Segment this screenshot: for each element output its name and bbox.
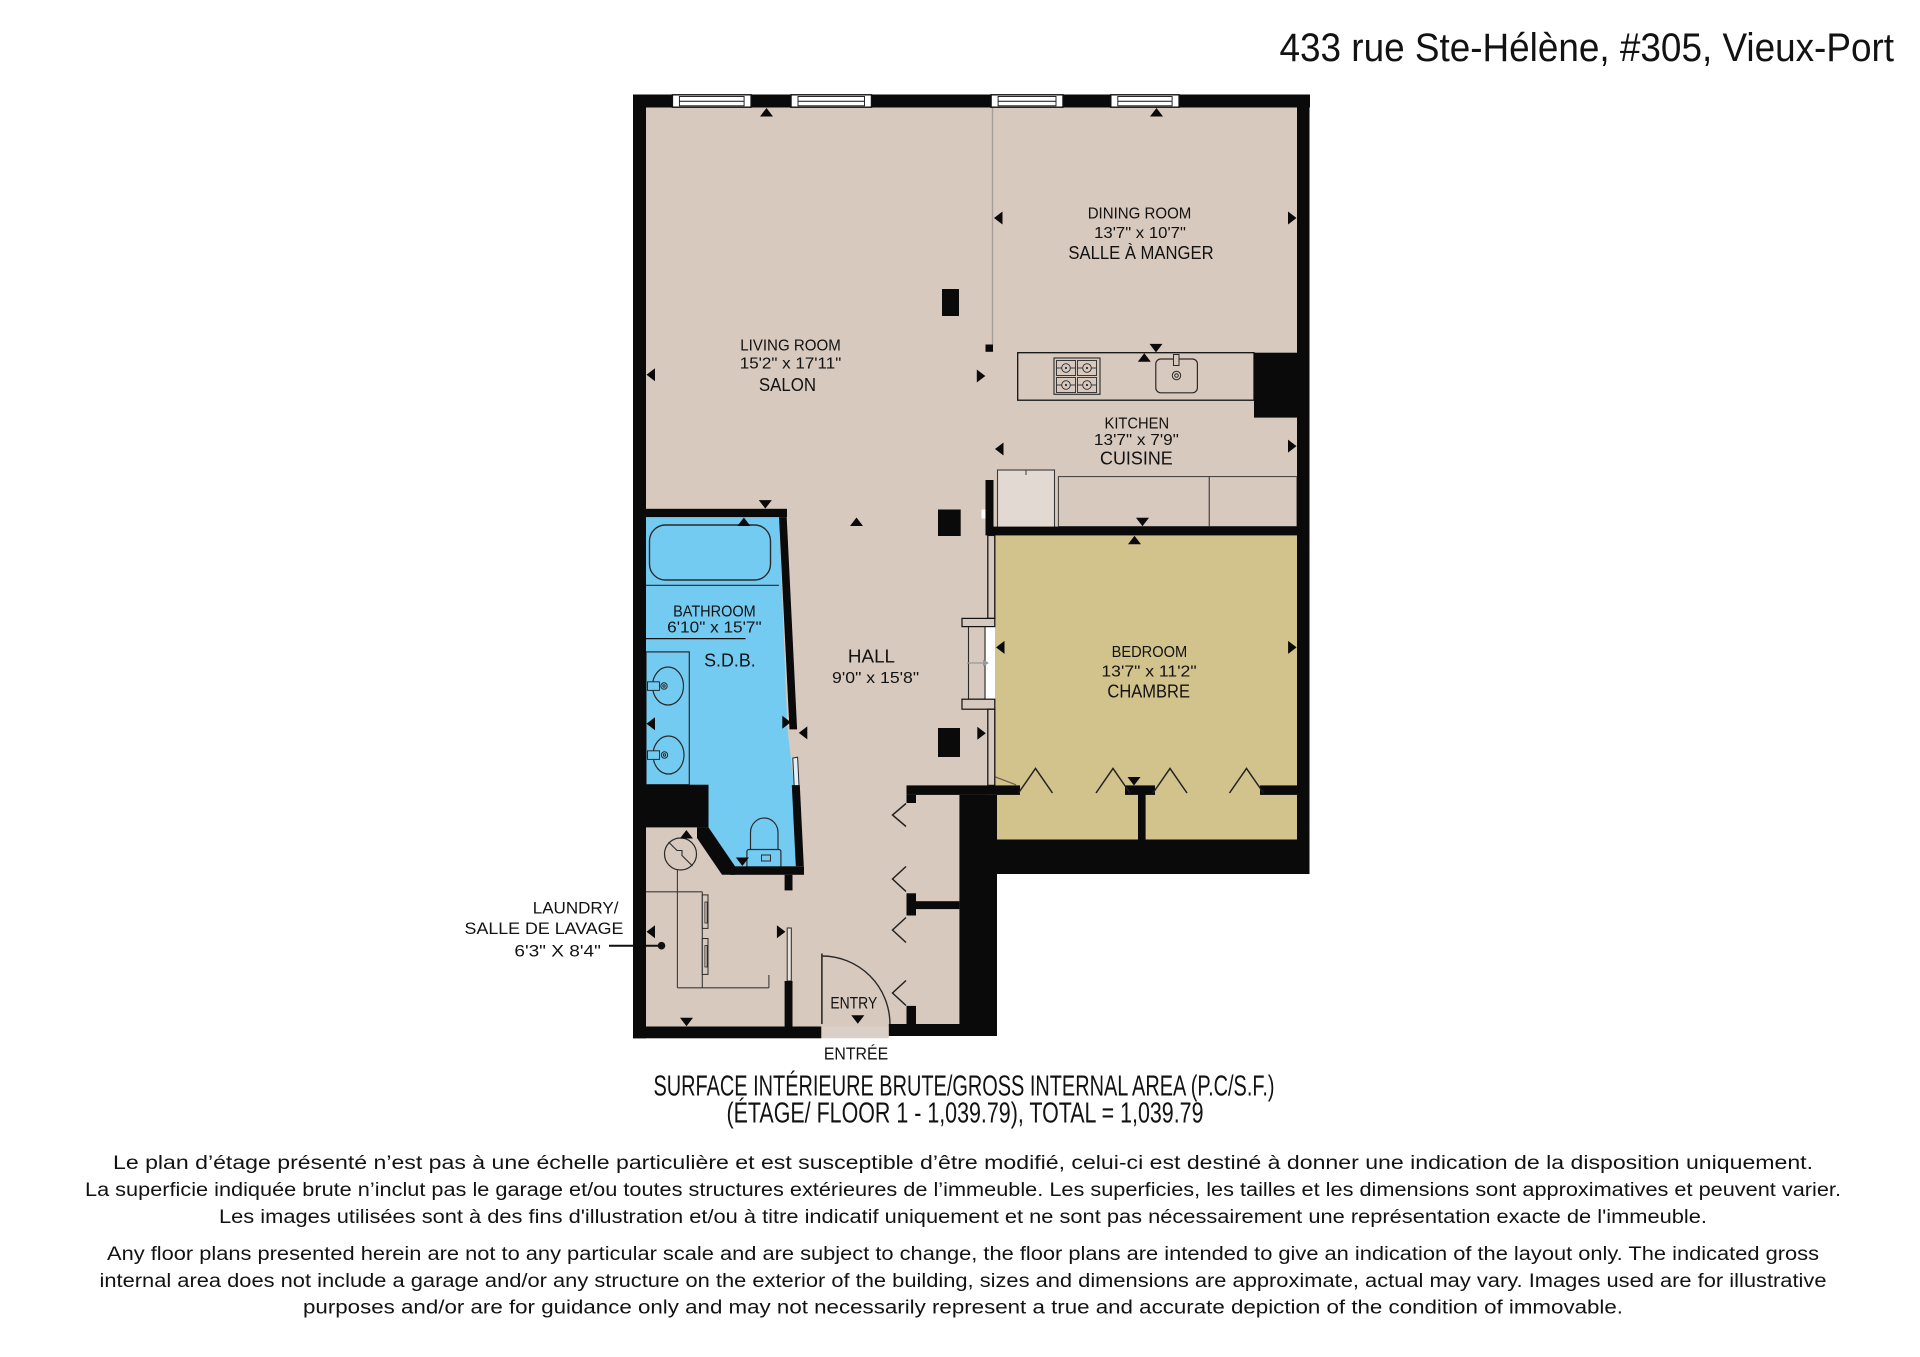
svg-text:13'7" x 10'7": 13'7" x 10'7" <box>1094 225 1186 242</box>
svg-text:BEDROOM: BEDROOM <box>1112 644 1188 661</box>
svg-text:LAUNDRY/: LAUNDRY/ <box>533 899 619 918</box>
svg-text:ENTRÉE: ENTRÉE <box>824 1043 888 1063</box>
svg-text:SALON: SALON <box>759 375 816 395</box>
svg-text:6'3" X 8'4": 6'3" X 8'4" <box>514 941 601 960</box>
svg-text:internal area does not include: internal area does not include a garage … <box>100 1271 1827 1292</box>
svg-text:SALLE DE LAVAGE: SALLE DE LAVAGE <box>465 919 624 938</box>
svg-text:Le plan d’étage présenté n’est: Le plan d’étage présenté n’est pas à une… <box>113 1153 1813 1174</box>
svg-text:433 rue Ste-Hélène, #305, Vieu: 433 rue Ste-Hélène, #305, Vieux-Port <box>1280 26 1895 70</box>
svg-text:Les images utilisées sont à de: Les images utilisées sont à des fins d'i… <box>219 1207 1707 1228</box>
svg-text:ENTRY: ENTRY <box>830 993 877 1012</box>
svg-text:La superficie indiquée brute n: La superficie indiquée brute n’inclut pa… <box>85 1180 1841 1201</box>
svg-text:13'7" x 7'9": 13'7" x 7'9" <box>1094 432 1179 449</box>
svg-text:S.D.B.: S.D.B. <box>704 651 756 671</box>
svg-text:BATHROOM: BATHROOM <box>673 603 756 620</box>
svg-text:(ÉTAGE/ FLOOR 1 - 1,039.79), T: (ÉTAGE/ FLOOR 1 - 1,039.79), TOTAL = 1,0… <box>727 1096 1204 1129</box>
svg-text:6'10" x 15'7": 6'10" x 15'7" <box>667 620 761 637</box>
svg-text:CHAMBRE: CHAMBRE <box>1107 682 1190 702</box>
svg-text:purposes and/or are for guidan: purposes and/or are for guidance only an… <box>303 1298 1623 1319</box>
svg-text:CUISINE: CUISINE <box>1100 448 1173 468</box>
svg-text:DINING ROOM: DINING ROOM <box>1088 206 1192 223</box>
svg-text:Any floor plans presented here: Any floor plans presented herein are not… <box>107 1244 1819 1265</box>
svg-text:SALLE À MANGER: SALLE À MANGER <box>1068 243 1213 263</box>
svg-text:15'2" x 17'11": 15'2" x 17'11" <box>740 355 842 372</box>
svg-text:HALL: HALL <box>848 645 895 666</box>
svg-text:9'0" x 15'8": 9'0" x 15'8" <box>832 670 919 687</box>
svg-text:KITCHEN: KITCHEN <box>1105 415 1170 432</box>
svg-text:13'7" x 11'2": 13'7" x 11'2" <box>1101 664 1196 681</box>
svg-text:LIVING ROOM: LIVING ROOM <box>740 338 841 355</box>
